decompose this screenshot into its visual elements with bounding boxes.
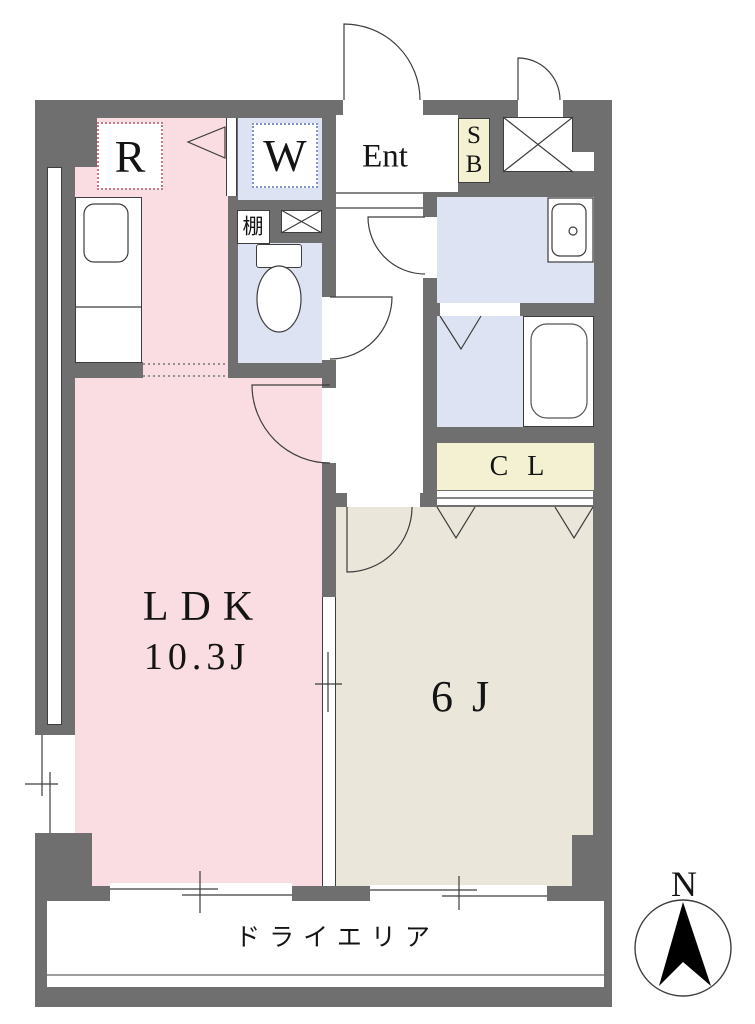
entrance-door-swing (344, 24, 420, 100)
north-arrow-icon (659, 902, 711, 986)
meter-box-notch (567, 152, 594, 171)
label-closet: C L (490, 453, 551, 481)
label-dry-area: ドライエリア (235, 926, 439, 951)
label-refrigerator: R (115, 134, 146, 180)
compass-circle (635, 900, 731, 996)
label-bedroom-size: 6 J (431, 675, 493, 719)
meter-box (503, 117, 573, 172)
wall-top-left-corner (35, 100, 97, 167)
bedroom-door-opening (347, 493, 420, 507)
left-window (35, 735, 75, 833)
shoe-box: S B (458, 118, 490, 183)
bathtub-area (523, 316, 594, 427)
floor-plan-page: S B (0, 0, 755, 1024)
ldk-bedroom-sliding-partition (322, 597, 336, 886)
left-light-shaft (47, 167, 62, 725)
washroom-door-opening (423, 217, 437, 278)
bathroom-door-opening (440, 303, 520, 316)
bedroom-window (370, 885, 547, 901)
wall-kitchen-stub (67, 362, 143, 378)
label-compass-north: N (671, 866, 697, 902)
label-ldk-size: 10.3J (144, 638, 250, 676)
shoe-box-letter-b: B (466, 151, 483, 180)
wall-step-bottom-right (572, 835, 612, 901)
label-entrance: Ent (362, 141, 408, 174)
washer-space-opening (226, 118, 237, 196)
entrance-door-opening (343, 100, 423, 116)
label-washer: W (263, 133, 306, 179)
kitchen-counter (75, 197, 142, 363)
toilet-door-opening (322, 297, 336, 360)
room-washroom-floor (437, 197, 594, 303)
closet-door-track (437, 491, 593, 505)
shoe-box-letter-s: S (467, 122, 481, 151)
ldk-window (110, 883, 292, 901)
meter-box-door-swing (518, 58, 560, 100)
ldk-door-opening (322, 388, 336, 463)
wall-step-bottom-left (35, 833, 92, 901)
meter-box-door-opening (518, 100, 563, 117)
label-shelf: 棚 (243, 217, 264, 238)
label-ldk-name: LDK (143, 586, 265, 628)
shelf-hatch-box (281, 210, 322, 233)
toilet-tank (256, 244, 302, 268)
